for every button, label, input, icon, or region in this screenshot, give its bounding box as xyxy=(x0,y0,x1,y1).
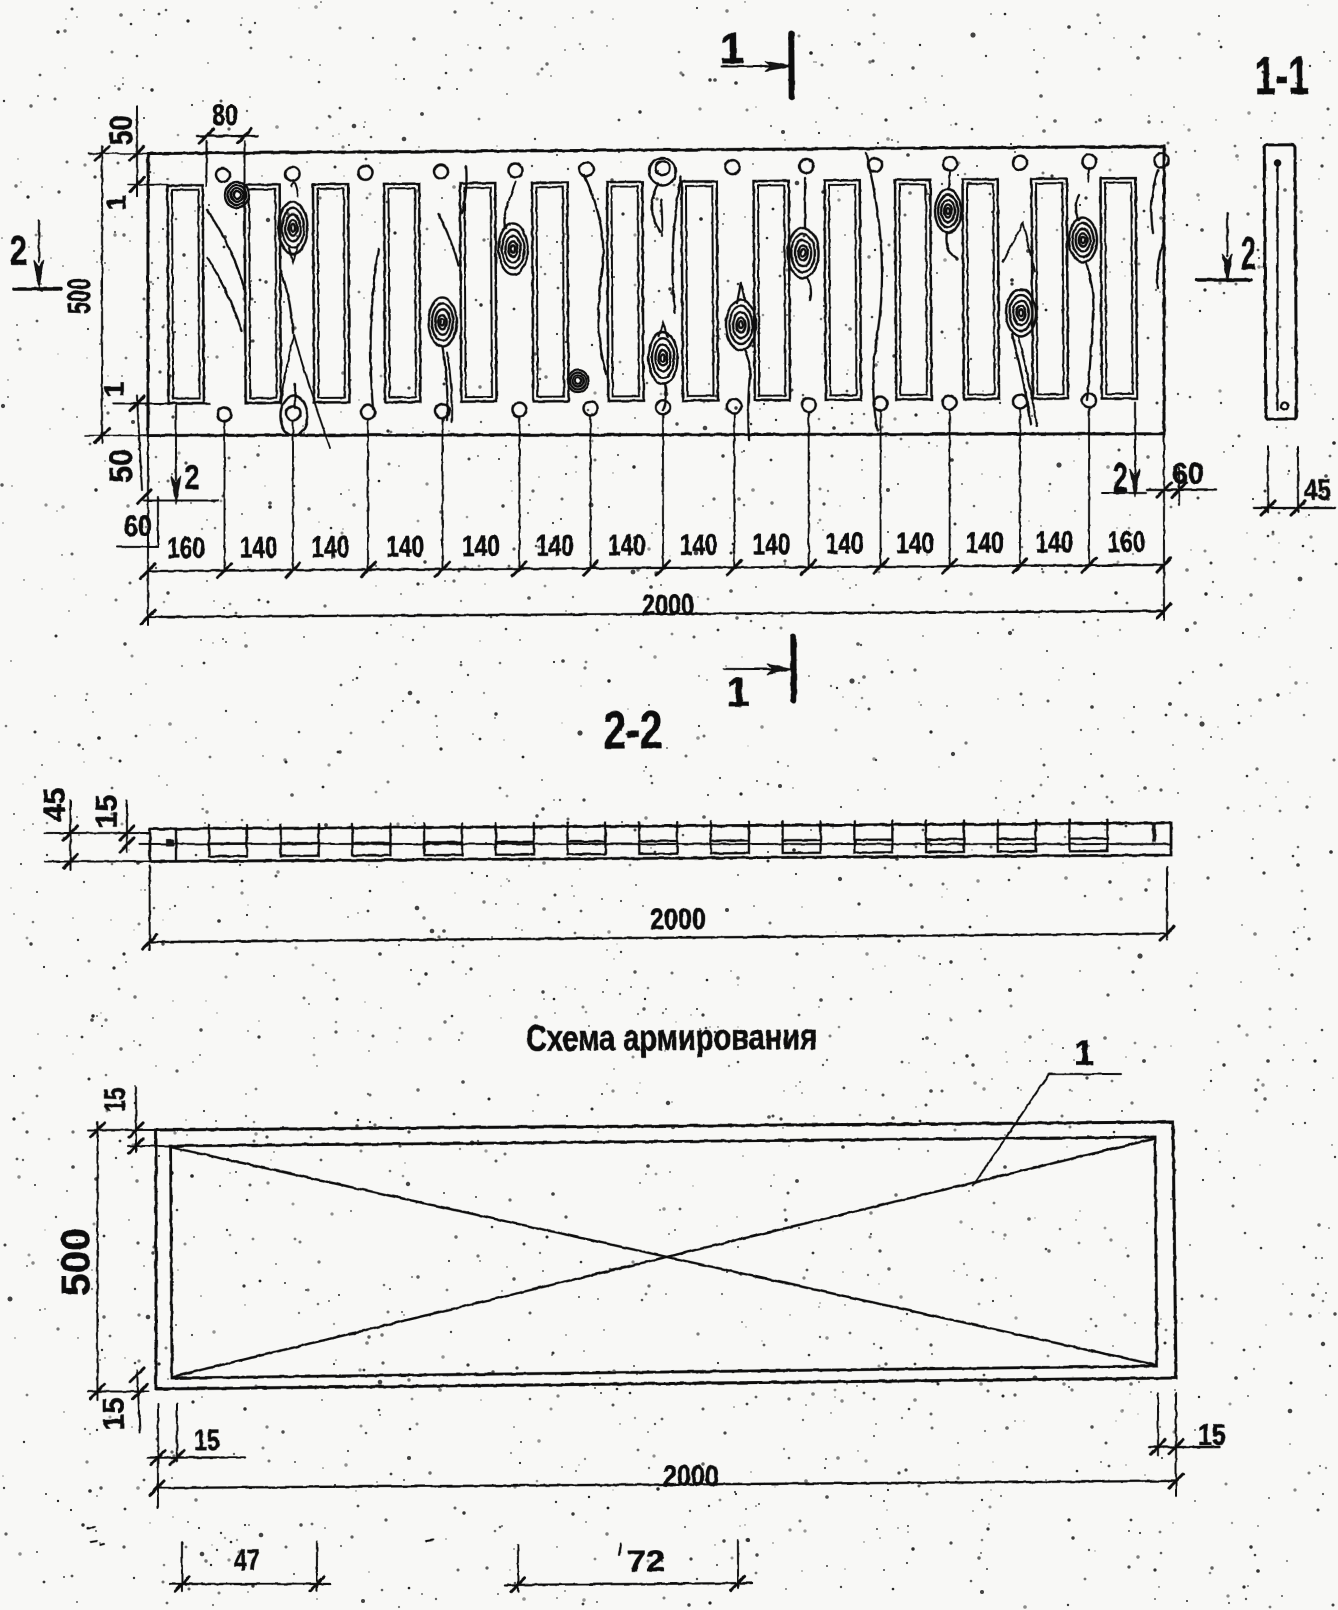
svg-text:140: 140 xyxy=(608,529,646,562)
svg-text:15: 15 xyxy=(98,1088,131,1112)
svg-text:140: 140 xyxy=(462,530,500,563)
svg-text:2000: 2000 xyxy=(642,589,694,622)
svg-text:45: 45 xyxy=(38,787,71,821)
svg-text:15: 15 xyxy=(1198,1419,1226,1452)
svg-text:140: 140 xyxy=(386,531,424,564)
svg-text:15: 15 xyxy=(97,1397,130,1430)
svg-text:140: 140 xyxy=(896,527,934,560)
svg-text:45: 45 xyxy=(1304,474,1331,507)
svg-text:140: 140 xyxy=(752,528,790,561)
svg-text:1: 1 xyxy=(719,24,744,73)
svg-text:140: 140 xyxy=(966,527,1004,560)
svg-text:15: 15 xyxy=(194,1424,220,1457)
svg-text:2: 2 xyxy=(184,459,199,497)
svg-text:500: 500 xyxy=(61,278,97,314)
svg-text:1: 1 xyxy=(726,668,750,715)
svg-text:1: 1 xyxy=(98,382,129,398)
svg-text:160: 160 xyxy=(167,532,205,565)
svg-text:2: 2 xyxy=(1113,454,1128,501)
svg-text:Схема армирования: Схема армирования xyxy=(526,1016,817,1059)
svg-text:140: 140 xyxy=(536,530,574,563)
svg-text:2000: 2000 xyxy=(650,903,706,936)
svg-text:50: 50 xyxy=(103,115,139,145)
svg-text:72: 72 xyxy=(627,1545,665,1578)
svg-text:2: 2 xyxy=(9,227,27,274)
svg-text:140: 140 xyxy=(311,531,349,564)
svg-text:80: 80 xyxy=(212,99,238,132)
svg-text:160: 160 xyxy=(1107,526,1145,559)
svg-text:47: 47 xyxy=(234,1544,260,1577)
svg-text:1: 1 xyxy=(1074,1032,1094,1073)
svg-text:1: 1 xyxy=(100,195,131,211)
svg-text:2000: 2000 xyxy=(663,1460,719,1493)
svg-text:15: 15 xyxy=(90,794,123,828)
svg-text:2: 2 xyxy=(1241,227,1256,279)
svg-text:500: 500 xyxy=(54,1228,98,1296)
svg-text:140: 140 xyxy=(1035,526,1073,559)
svg-text:140: 140 xyxy=(240,531,278,564)
svg-text:60: 60 xyxy=(1172,457,1204,490)
svg-text:140: 140 xyxy=(826,528,864,561)
svg-text:140: 140 xyxy=(680,529,718,562)
svg-text:2-2: 2-2 xyxy=(603,700,662,760)
svg-text:1-1: 1-1 xyxy=(1255,46,1309,106)
svg-text:50: 50 xyxy=(103,449,139,483)
